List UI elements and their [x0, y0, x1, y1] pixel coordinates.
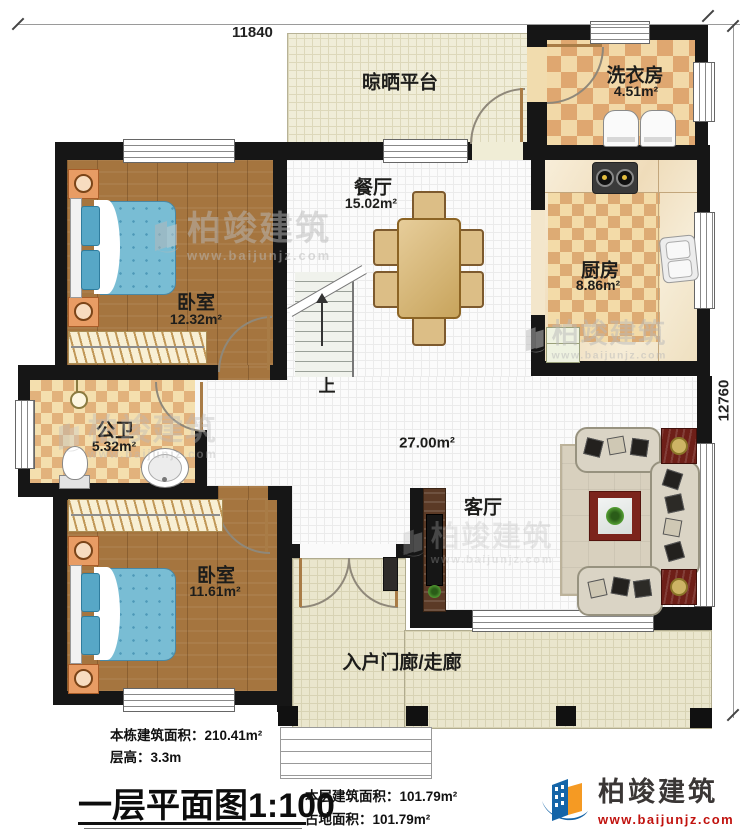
- sofa-cushion: [583, 437, 604, 458]
- floor-area-value: 101.79m²: [400, 789, 458, 804]
- nightstand: [68, 664, 99, 694]
- stairs-up-label: 上: [319, 372, 336, 397]
- plan-title: 一层平面图1:100: [78, 778, 335, 827]
- wall: [55, 142, 67, 370]
- end-table-lamp: [661, 428, 697, 464]
- sofa-cushion: [630, 438, 649, 457]
- sofa-top: [575, 427, 661, 473]
- gap-platform-door: [470, 142, 523, 160]
- counter-edge-right: [658, 160, 659, 361]
- room-area-living: 27.00m²: [399, 435, 455, 452]
- bed-bedroom2: [70, 565, 177, 662]
- room-area-laundry: 4.51m²: [614, 83, 658, 99]
- room-area-dining: 15.02m²: [345, 195, 397, 211]
- bathroom-sink: [141, 448, 189, 488]
- window-bedroom2: [123, 688, 235, 712]
- sofa-cushion: [633, 579, 652, 598]
- wall: [287, 142, 383, 160]
- brand-logo: 柏竣建筑 www.baijunjz.com: [538, 770, 734, 827]
- window-platform-dining: [383, 139, 468, 163]
- room-area-bedroom1: 12.32m²: [170, 311, 222, 327]
- dimension-tick: [702, 10, 715, 23]
- floor-height-value: 3.3m: [151, 750, 182, 765]
- sofa-bottom: [577, 566, 663, 616]
- land-area-label: 占地面积：: [305, 812, 373, 827]
- gas-stove: [592, 162, 638, 194]
- toilet: [58, 446, 90, 488]
- room-label-platform: 晾晒平台: [362, 68, 438, 95]
- dimension-line-right: [733, 26, 734, 718]
- tv-screen: [426, 514, 443, 586]
- toilet-bowl: [62, 446, 88, 480]
- door-leaf-bedroom2: [265, 500, 268, 552]
- stove-burner: [616, 169, 634, 187]
- stairs-arrow-head: [316, 293, 328, 303]
- brand-name: 柏竣建筑: [598, 770, 734, 809]
- door-leaf-platform: [520, 88, 523, 142]
- door-leaf-bathroom: [200, 382, 203, 430]
- end-table-lamp: [661, 569, 697, 605]
- wall: [18, 365, 30, 400]
- room-area-bedroom2: 11.61m²: [189, 583, 240, 599]
- plant-small: [428, 585, 441, 598]
- wall: [270, 365, 287, 380]
- stove-burner: [596, 169, 614, 187]
- kitchen-sink: [659, 234, 700, 284]
- wall: [277, 486, 292, 712]
- wardrobe-bedroom2: [68, 499, 223, 532]
- floor-hall-west: [207, 377, 292, 486]
- wardrobe-bedroom1: [68, 331, 207, 364]
- entry-door-leaf-left: [299, 558, 302, 607]
- fridge: [546, 327, 580, 363]
- porch-column: [278, 706, 298, 726]
- entry-steps: [280, 727, 432, 779]
- room-label-living: 客厅: [464, 493, 502, 520]
- sofa-right: [650, 461, 700, 577]
- bed-bedroom1: [70, 198, 177, 296]
- floor-area-line: 本层建筑面积：101.79m²: [305, 785, 457, 805]
- washing-machine: [603, 110, 639, 147]
- bed-pillow: [81, 616, 100, 655]
- wall: [527, 145, 710, 160]
- wall: [18, 365, 218, 380]
- sink-bowl: [665, 240, 691, 260]
- bed-pillow: [81, 573, 100, 612]
- wall: [277, 544, 300, 558]
- porch-column: [556, 706, 576, 726]
- fridge-door-line: [547, 343, 579, 344]
- total-area-label: 本栋建筑面积：: [110, 728, 205, 743]
- brand-logo-icon: [538, 771, 590, 827]
- sofa-cushion: [607, 436, 627, 456]
- title-underline-thick: [78, 822, 306, 825]
- nightstand: [68, 536, 99, 566]
- sofa-cushion: [587, 578, 607, 598]
- wall: [527, 102, 547, 145]
- wall: [531, 158, 545, 210]
- floor-area-label: 本层建筑面积：: [305, 789, 400, 804]
- sink-faucet: [162, 477, 167, 482]
- title-underline-thin: [84, 828, 302, 829]
- sofa-cushion: [611, 577, 631, 597]
- plant: [606, 507, 624, 525]
- room-label-porch: 入户门廊/走廊: [342, 648, 461, 675]
- shoe-cabinet: [383, 557, 398, 591]
- bed-pillow: [81, 206, 100, 246]
- nightstand: [68, 297, 99, 327]
- threshold-bedroom2: [218, 486, 268, 500]
- coffee-table: [589, 491, 641, 541]
- floor-plan: 上: [0, 0, 750, 840]
- door-leaf-bedroom1: [267, 316, 270, 370]
- window-laundry-right: [693, 62, 715, 122]
- wall: [410, 488, 423, 612]
- gap-kitchen-opening: [531, 210, 545, 316]
- wall: [527, 24, 547, 47]
- wall: [410, 610, 472, 628]
- dimension-line-top: [18, 24, 740, 25]
- wall: [273, 142, 287, 377]
- wall: [53, 486, 67, 705]
- dining-table: [397, 218, 461, 319]
- dimension-width: 11840: [232, 24, 273, 41]
- window-bedroom1: [123, 139, 235, 163]
- washing-machine: [640, 110, 676, 147]
- gap-entry-door: [300, 544, 396, 558]
- land-area-value: 101.79m²: [373, 812, 431, 827]
- land-area-line: 占地面积：101.79m²: [305, 808, 430, 828]
- wall: [697, 376, 712, 445]
- dimension-depth: 12760: [716, 377, 733, 425]
- total-area-value: 210.41m²: [205, 728, 263, 743]
- door-leaf-laundry: [547, 44, 602, 47]
- window-bathroom: [15, 400, 35, 469]
- brand-url: www.baijunjz.com: [598, 812, 734, 827]
- sink-bowl: [667, 259, 693, 279]
- room-area-kitchen: 8.86m²: [576, 277, 620, 293]
- sofa-cushion: [664, 493, 684, 513]
- floor-height-label: 层高：: [110, 750, 151, 765]
- wall: [533, 361, 710, 376]
- sofa-cushion: [662, 469, 683, 490]
- porch-column: [690, 708, 712, 728]
- stairs-arrow-line: [321, 302, 323, 346]
- porch-column: [406, 706, 428, 726]
- room-area-bathroom: 5.32m²: [92, 438, 136, 454]
- total-area-line: 本栋建筑面积：210.41m²: [110, 724, 262, 744]
- plan-title-text: 一层平面图: [78, 787, 248, 825]
- nightstand: [68, 169, 99, 199]
- sofa-cushion: [664, 541, 685, 562]
- floor-height-line: 层高：3.3m: [110, 746, 181, 766]
- gap-laundry-door: [527, 47, 547, 102]
- ceiling-lamp: [70, 391, 88, 409]
- bed-pillow: [81, 250, 100, 290]
- sofa-cushion: [663, 518, 683, 538]
